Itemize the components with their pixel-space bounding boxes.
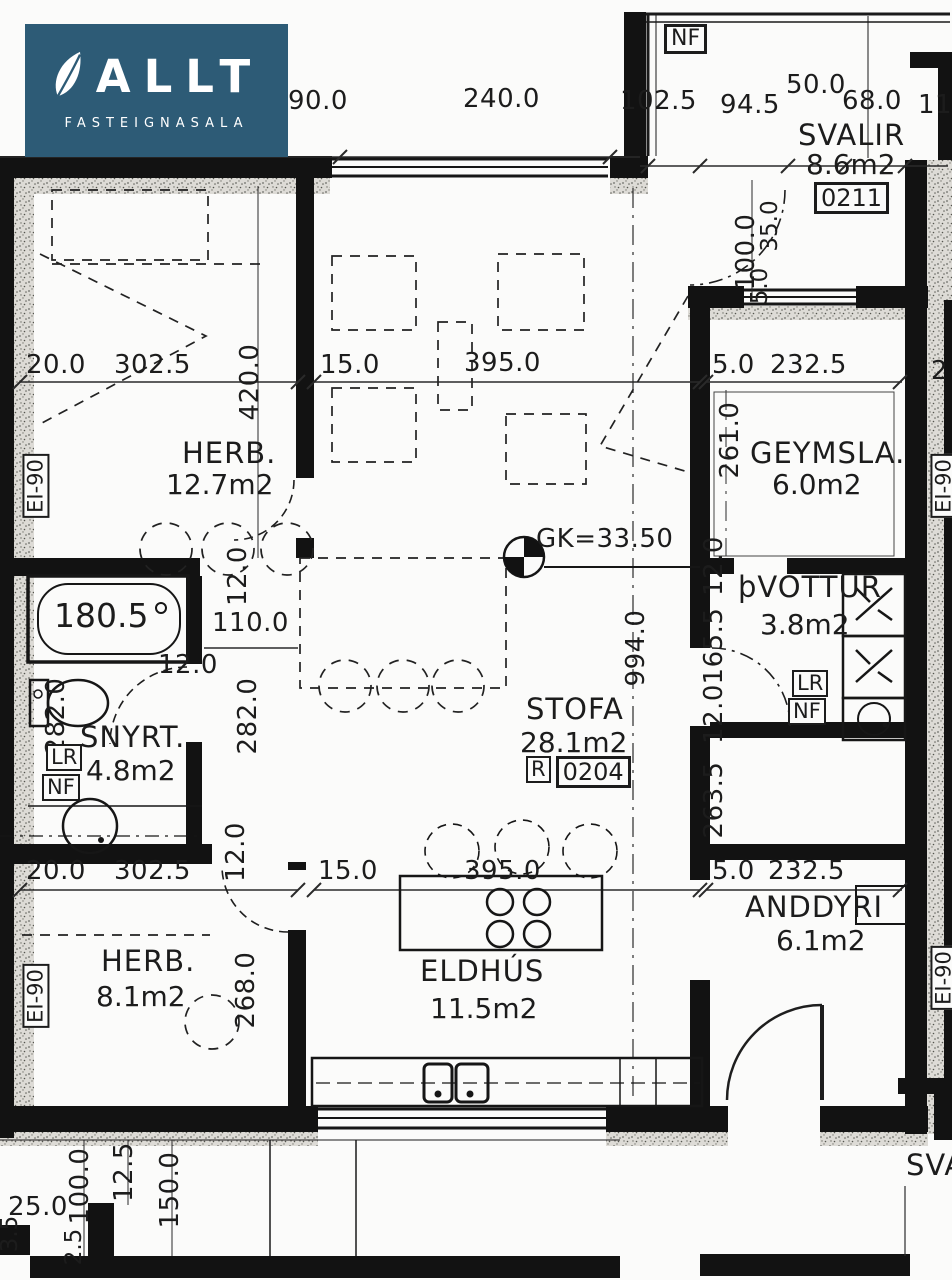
dining-table: [300, 558, 506, 688]
dim-top-240: 240.0: [463, 84, 540, 114]
dim-hall-110: 110.0: [212, 608, 289, 638]
dim-bathtub-180: 180.5: [54, 596, 148, 635]
dim-top-68: 68.0: [842, 86, 902, 116]
room-svalir-unit: 0211: [814, 182, 889, 214]
kitchen-counter: [312, 1058, 702, 1106]
kitchen-island: [400, 876, 602, 950]
nf-tag-svalir: NF: [664, 24, 707, 54]
dim-top-partial: 11: [918, 90, 952, 120]
room-snyrt-name: SNYRT.: [80, 720, 185, 754]
room-herb2-name: HERB.: [101, 944, 195, 978]
realtor-logo: ALLT FASTEIGNASALA: [25, 24, 288, 157]
logo-brand-text: ALLT: [96, 54, 263, 99]
room-geymsla-name: GEYMSLA.: [750, 436, 905, 470]
room-svalir-name: SVALIR: [798, 118, 905, 152]
dim-bath-12top: 12.0: [223, 546, 253, 606]
room-herb1-area: 12.7m2: [166, 468, 273, 501]
lr-tag-snyrt: LR: [46, 744, 82, 771]
dim-stofa-994: 994.0: [621, 610, 651, 687]
lr-tag-thvottur: LR: [792, 670, 828, 697]
nf-tag-snyrt: NF: [42, 774, 80, 801]
dim-corr-12b: 12.0: [699, 684, 729, 744]
dim-bot-25b: 2.5: [61, 1229, 87, 1266]
walls: [0, 12, 952, 1278]
fire-rating-right2: EI-90: [930, 946, 952, 1010]
dim-herb2-268: 268.0: [231, 952, 261, 1029]
dim-herb2-20: 20.0: [26, 856, 86, 886]
dim-corr-165: 165.5: [699, 608, 729, 685]
room-stofa-area: 28.1m2: [520, 726, 627, 759]
leaf-icon: [50, 50, 86, 102]
room-svalir-bottom-partial: SVA: [906, 1148, 952, 1182]
dim-geymsla-261: 261.0: [715, 402, 745, 479]
dim-top-94: 94.5: [720, 90, 780, 120]
room-thvottur-name: þVOTTUR: [738, 570, 882, 604]
room-stofa-name: STOFA: [526, 692, 624, 726]
room-thvottur-area: 3.8m2: [760, 608, 850, 641]
dim-corr-12a: 12.0: [699, 536, 729, 596]
room-eldhus-area: 11.5m2: [430, 992, 537, 1025]
dim-herb1-302: 302.5: [114, 350, 191, 380]
dim-anddyri-232: 232.5: [768, 856, 845, 886]
fire-rating-herb2: EI-90: [22, 964, 49, 1028]
dim-stofa-15: 15.0: [320, 350, 380, 380]
dim-bath-12bot: 12.0: [221, 822, 251, 882]
dim-eldhus-15: 15.0: [318, 856, 378, 886]
dim-herb2-302: 302.5: [114, 856, 191, 886]
dim-svalir-5: 5.0: [747, 268, 773, 305]
dim-bath-282-left: 282.0: [41, 678, 71, 755]
room-stofa-unit: 0204: [556, 756, 631, 788]
floor-plan-page: 90.0 240.0 102.5 94.5 50.0 68.0 11 NF SV…: [0, 0, 952, 1280]
room-stofa-unit-tag: R 0204: [526, 756, 631, 788]
r-tag: R: [526, 756, 551, 783]
dim-svalir-35: 35.0: [757, 200, 783, 251]
dim-top-90: 90.0: [288, 86, 348, 116]
room-anddyri-name: ANDDYRI: [745, 890, 883, 924]
room-herb2-area: 8.1m2: [96, 980, 186, 1013]
dim-right-partial: 2: [931, 356, 948, 386]
room-geymsla-area: 6.0m2: [772, 468, 862, 501]
dim-geymsla-232: 232.5: [770, 350, 847, 380]
dim-geymsla-5: 5.0: [712, 350, 755, 380]
dim-corr-263: 263.5: [699, 762, 729, 839]
room-snyrt-area: 4.8m2: [86, 754, 176, 787]
dim-herb1-20: 20.0: [26, 350, 86, 380]
room-herb1-name: HERB.: [182, 436, 276, 470]
dim-eldhus-395: 395.0: [464, 856, 541, 886]
dim-top-50: 50.0: [786, 70, 846, 100]
dim-bath-282-right: 282.0: [233, 678, 263, 755]
dim-bot-150: 150.0: [155, 1152, 185, 1229]
fire-rating-right1: EI-90: [930, 454, 952, 518]
dim-top-102: 102.5: [620, 86, 697, 116]
fire-rating-herb1: EI-90: [22, 454, 49, 518]
dim-anddyri-5: 5.0: [712, 856, 755, 886]
dim-bot-100: 100.0: [65, 1148, 95, 1225]
dim-stofa-395: 395.0: [464, 348, 541, 378]
room-eldhus-name: ELDHÚS: [420, 954, 544, 988]
room-anddyri-area: 6.1m2: [776, 924, 866, 957]
entry-door-arc: [727, 1005, 822, 1100]
survey-elevation: GK=33.50: [536, 524, 673, 554]
nf-tag-thvottur: NF: [788, 698, 826, 725]
dim-herb1-420: 420.0: [235, 344, 265, 421]
bathtub-drain: [156, 603, 166, 613]
dim-bath-12: 12.0: [158, 650, 218, 680]
room-svalir-area: 8.6m2: [806, 148, 896, 181]
logo-subtitle-text: FASTEIGNASALA: [65, 116, 249, 131]
dim-bot-35: 3.5: [0, 1216, 23, 1253]
windows: [318, 159, 856, 1128]
dim-bot-125: 12.5: [109, 1142, 139, 1202]
